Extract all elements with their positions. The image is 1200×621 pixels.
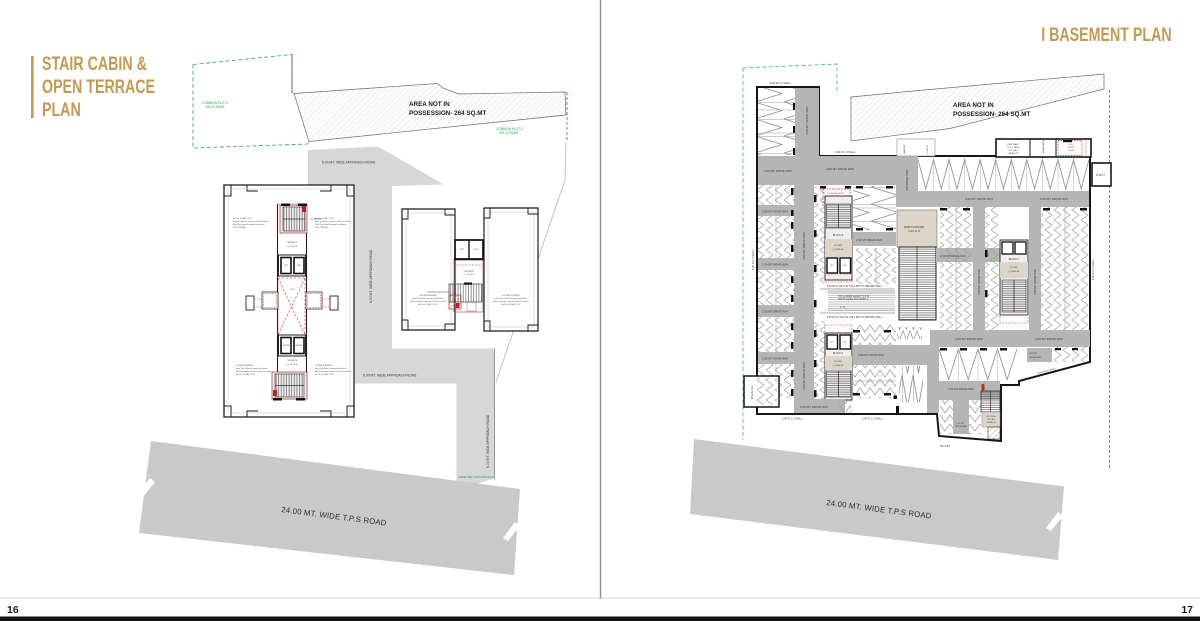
svg-text:CAPACITY: CAPACITY: [1008, 152, 1019, 155]
svg-text:SOLAR SURFACE: SOLAR SURFACE: [236, 364, 254, 367]
svg-text:4700 VIDE(A): 4700 VIDE(A): [233, 226, 246, 229]
svg-text:17: 17: [1181, 604, 1193, 616]
svg-text:6.00 MT. WIDE APPROACH ROAD: 6.00 MT. WIDE APPROACH ROAD: [322, 161, 376, 165]
svg-text:6.00 R.C.C WALL: 6.00 R.C.C WALL: [782, 417, 803, 421]
svg-text:TOTAL RAMP LENGTH 1:8 IN: TOTAL RAMP LENGTH 1:8 IN: [838, 295, 869, 298]
svg-text:2.50 MT DRIVE WAY: 2.50 MT DRIVE WAY: [764, 169, 792, 173]
svg-text:And Ventilation System Is As P: And Ventilation System Is As Provided: [410, 300, 446, 303]
svg-text:(+) 31.05 M: (+) 31.05 M: [286, 364, 297, 366]
svg-text:2.50 MT DRIVE WAY: 2.50 MT DRIVE WAY: [762, 210, 789, 214]
svg-text:6.00 R.C.C WALL: 6.00 R.C.C WALL: [862, 417, 883, 421]
svg-text:2.50 MT DRIVE WAY: 2.50 MT DRIVE WAY: [856, 238, 883, 242]
svg-text:0.00 LVL B: 0.00 LVL B: [908, 230, 920, 233]
svg-text:And Ventilation System Is As P: And Ventilation System Is As Provided: [315, 220, 351, 223]
svg-text:AREA NOT IN: AREA NOT IN: [409, 101, 450, 108]
svg-text:1.5 LK TANK: 1.5 LK TANK: [1007, 146, 1020, 149]
svg-text:6.00 MT. WIDE APPROACH ROAD: 6.00 MT. WIDE APPROACH ROAD: [369, 249, 373, 303]
svg-text:METER: METER: [1068, 147, 1075, 149]
svg-text:16: 16: [7, 604, 19, 616]
svg-text:As Per ZU4A) 17.8.1: As Per ZU4A) 17.8.1: [315, 217, 335, 220]
svg-text:FOYER: FOYER: [834, 361, 842, 363]
svg-text:As Per ZU4A) 17.8.1: As Per ZU4A) 17.8.1: [236, 373, 256, 376]
svg-text:4.50 MT DRIVE WAY: 4.50 MT DRIVE WAY: [802, 232, 806, 260]
svg-text:6.00 MT. WIDE APPROACH ROAD: 6.00 MT. WIDE APPROACH ROAD: [363, 374, 417, 378]
svg-text:RAMP PLATFORM: RAMP PLATFORM: [904, 226, 924, 229]
svg-text:FOYER: FOYER: [1010, 267, 1018, 269]
svg-text:4700 VIDE(A): 4700 VIDE(A): [315, 226, 328, 229]
svg-text:03 4.50: 03 4.50: [940, 444, 950, 448]
svg-text:And Ventilation System Is As P: And Ventilation System Is As Provided: [233, 220, 269, 223]
svg-text:OPEN TERRACE: OPEN TERRACE: [42, 76, 155, 98]
svg-text:DRIVE WAY: DRIVE WAY: [955, 425, 968, 428]
svg-text:TERRACE: TERRACE: [464, 270, 475, 273]
svg-text:WATER: WATER: [296, 344, 304, 347]
svg-text:6.00 M LVL WALL IN THE 1.5MT: 6.00 M LVL WALL IN THE 1.5MT HT PARAPET …: [827, 285, 883, 288]
svg-text:302.17 SQMT: 302.17 SQMT: [499, 131, 519, 135]
svg-text:RAMP DN: RAMP DN: [903, 144, 906, 154]
svg-text:4.50 MT DRIVE WAY: 4.50 MT DRIVE WAY: [1033, 268, 1037, 295]
svg-text:INSTALLATION: INSTALLATION: [1042, 139, 1045, 153]
svg-text:6.00 M LVL WALL IN THE 1.5MT: 6.00 M LVL WALL IN THE 1.5MT HT PARAPET …: [827, 316, 883, 319]
svg-text:I BASEMENT PLAN: I BASEMENT PLAN: [1041, 24, 1171, 46]
svg-text:As Per ZU4A) 17.8.1: As Per ZU4A) 17.8.1: [501, 303, 521, 306]
svg-text:CATAL M: CATAL M: [986, 421, 995, 424]
svg-text:2.50 MT DRIVE WAY: 2.50 MT DRIVE WAY: [858, 353, 885, 357]
svg-text:SOLAR SURFACE: SOLAR SURFACE: [419, 294, 437, 297]
svg-text:As Per ZU4A) 17.8.1: As Per ZU4A) 17.8.1: [315, 373, 335, 376]
svg-text:6.00 R.C.C WALL: 6.00 R.C.C WALL: [835, 150, 856, 154]
svg-text:And Ventilation System Is As P: And Ventilation System Is As Provided: [236, 370, 272, 373]
svg-text:SOLAR SURFACE: SOLAR SURFACE: [502, 294, 520, 297]
svg-text:TERRACE: TERRACE: [287, 241, 298, 244]
svg-text:AREA NOT IN: AREA NOT IN: [953, 102, 994, 109]
svg-text:PLAN: PLAN: [42, 99, 81, 121]
svg-text:WIDTH LEVEL ADJUSTED 1: WIDTH LEVEL ADJUSTED 1: [838, 298, 869, 301]
svg-text:R.W.H.T: R.W.H.T: [1096, 174, 1106, 177]
svg-text:BLOCK C: BLOCK C: [1009, 258, 1020, 261]
svg-text:2.50 MT DRIVE WAY: 2.50 MT DRIVE WAY: [762, 263, 789, 267]
svg-text:FOYER: FOYER: [987, 419, 995, 421]
svg-text:(-) 3054.46: (-) 3054.46: [833, 249, 844, 251]
svg-text:DRIVEWAY ENTRY: DRIVEWAY ENTRY: [828, 192, 845, 195]
svg-text:TERRACE: TERRACE: [287, 359, 298, 362]
svg-text:ROOM: ROOM: [1068, 150, 1074, 152]
svg-text:3.00 MT DRIVE WAY: 3.00 MT DRIVE WAY: [1035, 337, 1063, 341]
svg-text:OTS: OTS: [290, 289, 295, 291]
svg-text:STORE: STORE: [283, 345, 291, 347]
svg-text:As Per ZU4A) 17.8.1: As Per ZU4A) 17.8.1: [233, 217, 253, 220]
svg-text:DRIVE WAY: DRIVE WAY: [1029, 356, 1042, 359]
svg-text:Roof Top Solar Energy Installa: Roof Top Solar Energy Installation: [236, 367, 268, 370]
svg-text:2.50 MT DRIVE WAY: 2.50 MT DRIVE WAY: [762, 357, 789, 361]
svg-text:(LOC) AT): (LOC) AT): [1008, 149, 1018, 152]
svg-text:Roof Top Solar Energy Installa: Roof Top Solar Energy Installation: [233, 223, 265, 226]
svg-text:6.00 MT. WIDE APPROACH ROAD: 6.00 MT. WIDE APPROACH ROAD: [486, 414, 490, 468]
svg-text:FIRE TANK: FIRE TANK: [1007, 143, 1019, 146]
svg-text:4.50 MT DRIVE WAY: 4.50 MT DRIVE WAY: [826, 167, 854, 171]
svg-text:2.50 MT: 2.50 MT: [1029, 353, 1038, 355]
svg-text:1.5 MT HT: 1.5 MT HT: [927, 144, 929, 154]
svg-text:2.50 MT DRIVE WAY: 2.50 MT DRIVE WAY: [762, 310, 789, 314]
svg-text:3.00 MT DRIVE WAY: 3.00 MT DRIVE WAY: [955, 337, 983, 341]
svg-text:SOLAR SURFACE: SOLAR SURFACE: [315, 364, 333, 367]
svg-text:3.00 MT DRIVE WAY: 3.00 MT DRIVE WAY: [965, 197, 993, 201]
svg-text:2.50 MT DRIVE WAY: 2.50 MT DRIVE WAY: [948, 387, 975, 391]
svg-text:FOYER: FOYER: [834, 245, 842, 247]
svg-text:BLOCK A: BLOCK A: [986, 415, 996, 418]
svg-text:As Per ZU4A) 17.8.1: As Per ZU4A) 17.8.1: [418, 303, 438, 306]
svg-text:3.00 MT DRIVE WAY: 3.00 MT DRIVE WAY: [1040, 197, 1068, 201]
svg-text:3.00 MT DRIVE WAY: 3.00 MT DRIVE WAY: [977, 268, 981, 295]
svg-text:ELEC: ELEC: [1069, 144, 1075, 146]
svg-text:BLOCK A: BLOCK A: [833, 352, 844, 355]
svg-text:BLOCK B: BLOCK B: [833, 234, 844, 237]
svg-text:(-) 3054.46: (-) 3054.46: [1009, 271, 1020, 273]
svg-text:232.97 SQMT: 232.97 SQMT: [205, 105, 225, 109]
svg-text:(-) 3054.46: (-) 3054.46: [833, 365, 844, 367]
svg-text:6.00 R.C.C WALL: 6.00 R.C.C WALL: [770, 81, 791, 85]
svg-text:W.G /E.S.R: W.G /E.S.R: [750, 386, 754, 399]
svg-text:GREEN BELT WITH B.B WALL: GREEN BELT WITH B.B WALL: [458, 475, 495, 479]
svg-text:Roof Top Solar Energy Installa: Roof Top Solar Energy Installation: [315, 223, 347, 226]
svg-text:(+) 31.05 M: (+) 31.05 M: [286, 246, 297, 248]
svg-text:STAIR CABIN &: STAIR CABIN &: [42, 53, 147, 75]
svg-text:And Ventilation System Is As P: And Ventilation System Is As Provided: [315, 370, 351, 373]
svg-text:POSSESSION- 264 SQ.MT: POSSESSION- 264 SQ.MT: [953, 111, 1030, 118]
svg-text:Roof Top Solar Energy Installa: Roof Top Solar Energy Installation: [495, 297, 527, 300]
svg-text:(+) 31.05 M: (+) 31.05 M: [464, 274, 475, 276]
svg-text:3.00 MT DRIVE WAY: 3.00 MT DRIVE WAY: [800, 405, 828, 409]
svg-text:4.50 MT. DRIVE WAY: 4.50 MT. DRIVE WAY: [805, 106, 809, 135]
svg-text:4.50 MT DRIVE WAY: 4.50 MT DRIVE WAY: [802, 362, 806, 390]
svg-text:And Ventilation System Is As P: And Ventilation System Is As Provided: [493, 300, 529, 303]
svg-text:6.00 R.C.C WALL: 6.00 R.C.C WALL: [751, 249, 755, 270]
svg-text:Roof Top Solar Energy Installa: Roof Top Solar Energy Installation: [315, 367, 347, 370]
svg-text:6.00 R.C.C WALL: 6.00 R.C.C WALL: [1091, 259, 1095, 280]
svg-text:POSSESSION- 264 SQ.MT: POSSESSION- 264 SQ.MT: [409, 110, 486, 117]
svg-text:Roof Top Solar Energy Installa: Roof Top Solar Energy Installation: [412, 297, 444, 300]
svg-text:1 : 8: 1 : 8: [840, 307, 845, 309]
svg-text:2.50 MT: 2.50 MT: [956, 423, 965, 425]
